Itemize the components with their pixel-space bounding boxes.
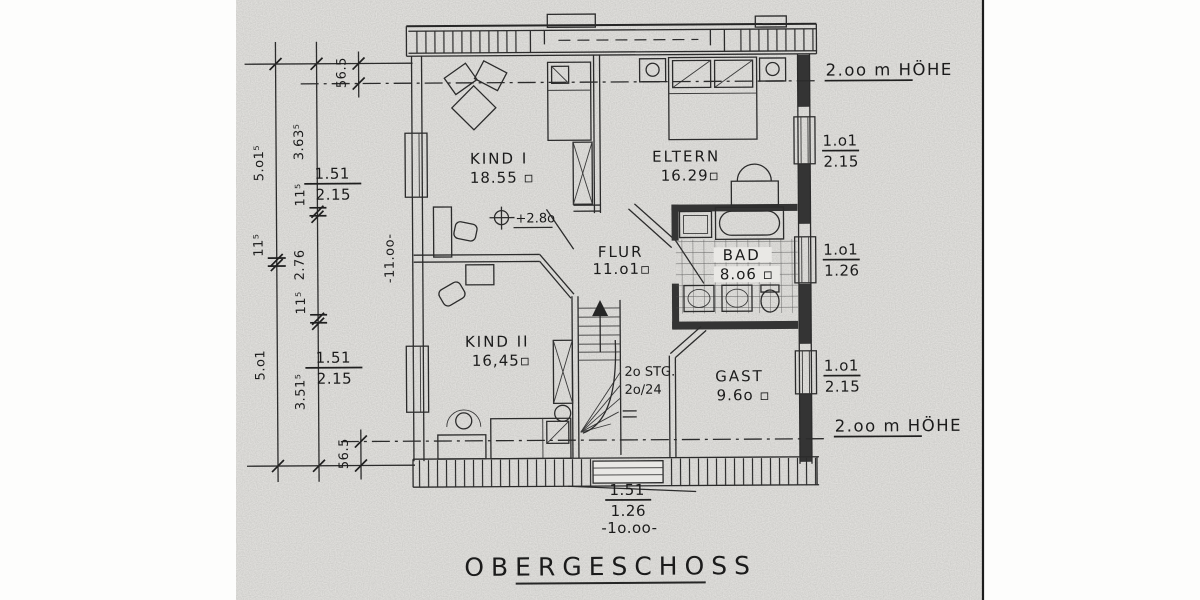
room-kind2-area: 16,45▫: [472, 351, 531, 369]
room-flur-name: FLUR: [598, 243, 644, 261]
room-eltern-area: 16.29▫: [661, 166, 720, 184]
room-bad-area: 8.o6 ▫: [720, 265, 774, 283]
win-right-mid-w: 1.o1: [823, 240, 858, 258]
stairs-count-label: 2o STG.: [624, 365, 675, 380]
room-kind1-area: 18.55 ▫: [470, 168, 535, 186]
win-left-top-w: 1.51: [314, 165, 350, 183]
stairs-ratio-label: 2o/24: [625, 383, 662, 398]
win-left-bottom-w: 1.51: [316, 349, 352, 367]
win-left-bottom-h: 2.15: [317, 370, 353, 388]
scanned-floorplan-page: KIND I 18.55 ▫ ELTERN 16.29▫ FLUR 11.o1▫…: [0, 0, 1200, 600]
plan-title: OBERGESCHOSS: [464, 551, 757, 582]
room-flur-area: 11.o1▫: [592, 260, 651, 278]
dim-inner-bottom: 3.51⁵: [293, 374, 308, 411]
room-gast-area: 9.6o ▫: [717, 386, 771, 404]
window-dim-right-top: 1.o1 2.15: [822, 131, 859, 170]
win-bottom-h: 1.26: [611, 502, 647, 520]
dim-inner-wall2: 11⁵: [294, 291, 309, 314]
floorplan-canvas: KIND I 18.55 ▫ ELTERN 16.29▫ FLUR 11.o1▫…: [0, 0, 1200, 600]
win-bottom-w: 1.51: [609, 481, 645, 499]
top-wall-hatch-right: [735, 29, 814, 51]
win-left-top-h: 2.15: [316, 186, 352, 204]
height-note-bottom: 2.oo m HÖHE: [835, 416, 962, 436]
win-right-bottom-w: 1.o1: [824, 356, 859, 374]
dim-offset-top: 56.5: [335, 57, 350, 88]
dim-inner-top: 3.63⁵: [292, 124, 307, 161]
window-dim-right-bottom: 1.o1 2.15: [823, 356, 860, 395]
win-right-top-h: 2.15: [823, 152, 859, 170]
dim-outer-wall: 11⁵: [252, 233, 267, 256]
height-note-top: 2.oo m HÖHE: [826, 60, 953, 80]
room-gast-name: GAST: [715, 367, 764, 385]
dim-interior-length: -11.oo-: [383, 233, 398, 283]
dim-inner-mid: 2.76: [293, 249, 308, 280]
win-right-mid-h: 1.26: [824, 261, 860, 279]
plan-title-block: OBERGESCHOSS: [464, 551, 757, 584]
room-kind1-name: KIND I: [470, 149, 528, 167]
dim-total-width: -1o.oo-: [601, 519, 657, 537]
dim-inner-wall1: 11⁵: [293, 183, 308, 206]
room-kind2-name: KIND II: [465, 332, 530, 350]
top-wall-hatch-left: [410, 31, 520, 54]
room-bad-name: BAD: [723, 246, 761, 264]
dim-offset-bottom: 56.5: [337, 438, 352, 469]
window-dim-right-mid: 1.o1 1.26: [823, 240, 860, 279]
level-marker-text: +2.8o: [515, 211, 555, 226]
dim-outer-bottom: 5.o1: [253, 350, 268, 381]
room-eltern-name: ELTERN: [652, 147, 720, 165]
dim-outer-top: 5.o1⁵: [252, 145, 267, 181]
win-right-bottom-h: 2.15: [825, 377, 861, 395]
win-right-top-w: 1.o1: [822, 131, 857, 149]
window-stair-bay: [593, 461, 663, 483]
